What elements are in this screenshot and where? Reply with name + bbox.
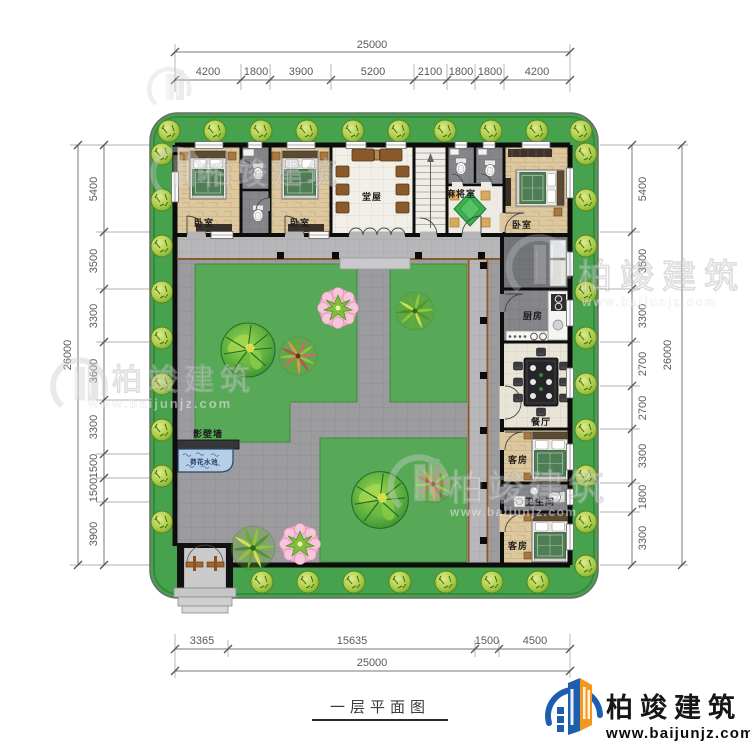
drawing-title: 一层平面图: [330, 699, 430, 716]
dim-top-total: 25000: [357, 39, 388, 51]
toilet: [456, 158, 467, 175]
wardrobe: [508, 149, 552, 157]
room-label-bedroom2: 卧室: [290, 217, 310, 228]
watermark-url: www.baijunjz.com: [449, 505, 578, 519]
dim-right-seg-4: 2700: [637, 396, 649, 420]
toilet: [253, 205, 264, 222]
bed: [516, 170, 564, 206]
tree: [231, 526, 275, 570]
brand-name: 柏竣建筑: [606, 692, 742, 723]
watermark-text: 柏竣建筑: [202, 157, 342, 191]
dim-top-seg-6: 1800: [478, 66, 502, 78]
room-label-screen-wall: 影壁墙: [193, 428, 223, 439]
dim-left-seg-2: 3300: [88, 304, 100, 328]
entrance-step: [182, 606, 228, 613]
dim-left-seg-0: 5400: [88, 177, 100, 201]
dim-top-seg-3: 5200: [361, 66, 385, 78]
dim-top-seg-4: 2100: [418, 66, 442, 78]
dim-left-seg-4: 3300: [88, 415, 100, 439]
flower-tree: [318, 288, 359, 329]
watermark-url: www.baijunjz.com: [581, 295, 718, 309]
dim-bottom-seg-0: 3365: [190, 635, 214, 647]
floorplan-drawing: 25000 4200 1800 3900 5200 2100 1800 1800…: [0, 0, 750, 750]
dimension-right: 26000 5400 3500 3300 2700 2700 3300 1800…: [600, 141, 688, 569]
room-label-lotus-pond: 荷花水池: [189, 457, 218, 466]
bed: [532, 514, 568, 562]
toilet: [485, 160, 496, 177]
watermark-text: 柏竣建筑: [112, 363, 256, 397]
dim-right-seg-5: 3300: [637, 444, 649, 468]
dim-top-seg-7: 4200: [525, 66, 549, 78]
room-label-bedroom1: 卧室: [194, 217, 214, 228]
dimension-top: 25000 4200 1800 3900 5200 2100 1800 1800…: [171, 39, 574, 92]
floorplan-page: 25000 4200 1800 3900 5200 2100 1800 1800…: [0, 0, 750, 750]
dim-bottom-seg-3: 4500: [523, 635, 547, 647]
dim-right-seg-7: 3300: [637, 526, 649, 550]
dim-right-seg-6: 1800: [637, 485, 649, 509]
brand-url: www.baijunjz.com: [605, 725, 750, 742]
dim-bottom-seg-2: 1500: [475, 635, 499, 647]
dim-left-seg-5: 1500: [88, 454, 100, 478]
room-label-kitchen: 厨房: [523, 310, 543, 321]
room-label-dining: 餐厅: [530, 416, 551, 427]
dim-right-seg-0: 5400: [637, 177, 649, 201]
room-label-mahjong: 麻将室: [445, 188, 476, 199]
room-label-hall: 堂屋: [362, 191, 382, 202]
room-label-bedroom3: 卧室: [512, 219, 532, 230]
watermark-text: 柏竣建筑: [448, 467, 608, 508]
brand-logo-icon: [548, 678, 600, 735]
watermark-text: 柏竣建筑: [578, 257, 746, 296]
dim-left-seg-7: 3900: [88, 522, 100, 546]
tree: [279, 337, 317, 375]
dimension-left: 26000 5400 3500 3300 3600 3300 1500 1500…: [62, 141, 150, 569]
dim-right-seg-3: 2700: [637, 352, 649, 376]
dim-top-seg-5: 1800: [449, 66, 473, 78]
screen-wall: [177, 440, 239, 449]
dim-top-seg-1: 1800: [244, 66, 268, 78]
drawing-title-block: 一层平面图: [312, 699, 448, 720]
dim-top-seg-0: 4200: [196, 66, 220, 78]
dim-left-seg-1: 3500: [88, 249, 100, 273]
dim-bottom-total: 25000: [357, 657, 388, 669]
dim-left-seg-6: 1500: [88, 478, 100, 502]
tree: [352, 472, 409, 529]
tree: [396, 292, 434, 330]
brand-block: 柏竣建筑 www.baijunjz.com: [548, 678, 750, 742]
entrance-gate: [174, 543, 236, 613]
entrance-step: [178, 597, 232, 606]
dim-bottom-seg-1: 15635: [337, 635, 368, 647]
dim-right-total: 26000: [662, 340, 674, 371]
dim-top-seg-2: 3900: [289, 66, 313, 78]
room-label-guest2: 客房: [507, 540, 528, 551]
entrance-step: [174, 588, 236, 597]
room-label-guest1: 客房: [507, 454, 528, 465]
dimension-bottom: 3365 15635 1500 4500 25000: [171, 634, 574, 678]
flower-tree: [280, 524, 321, 565]
watermark-url: www.baijunjz.com: [87, 396, 232, 411]
